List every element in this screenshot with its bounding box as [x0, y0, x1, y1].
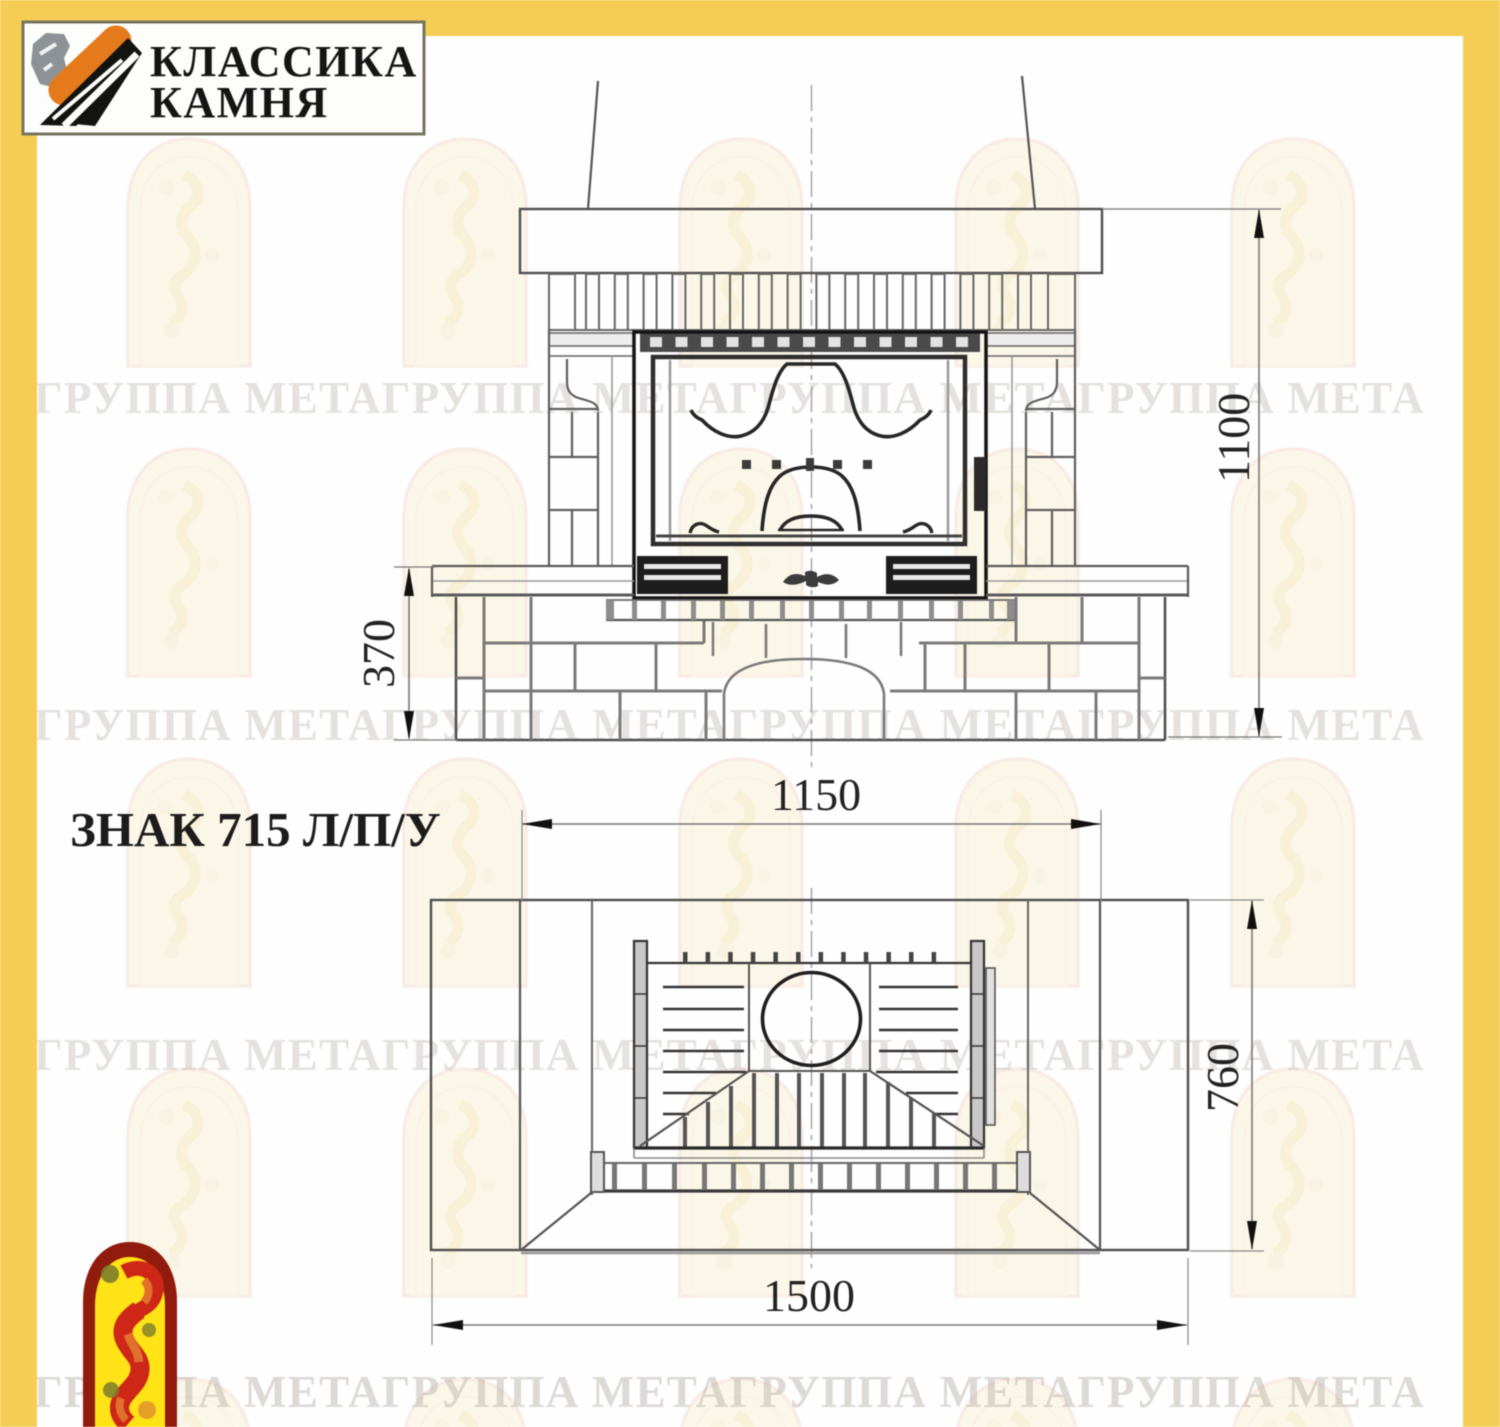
- svg-text:1500: 1500: [763, 1270, 855, 1321]
- svg-text:КАМНЯ: КАМНЯ: [150, 78, 329, 127]
- svg-text:1100: 1100: [1208, 393, 1259, 483]
- svg-text:ГРУППА МЕТАГРУППА МЕТАГРУППА М: ГРУППА МЕТАГРУППА МЕТАГРУППА МЕТАГРУППА …: [34, 700, 1425, 750]
- svg-text:1150: 1150: [771, 769, 861, 820]
- svg-text:ЗНАК 715 Л/П/У: ЗНАК 715 Л/П/У: [70, 802, 441, 857]
- svg-text:370: 370: [353, 619, 404, 688]
- svg-text:ГРУППА МЕТАГРУППА МЕТАГРУППА М: ГРУППА МЕТАГРУППА МЕТАГРУППА МЕТАГРУППА …: [34, 1367, 1425, 1417]
- svg-text:760: 760: [1197, 1043, 1248, 1112]
